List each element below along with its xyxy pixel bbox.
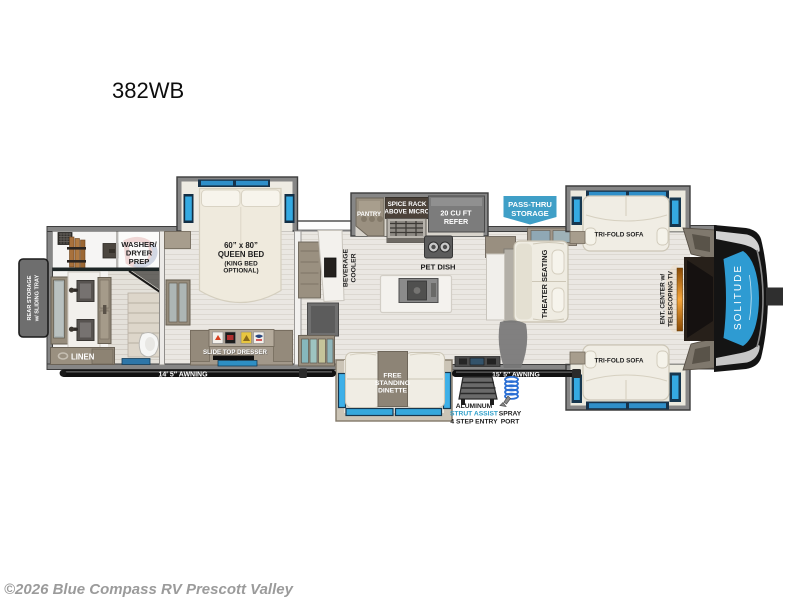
svg-text:SPICE RACK: SPICE RACK [388, 201, 427, 208]
svg-text:382WB: 382WB [112, 78, 184, 103]
svg-text:TRI-FOLD SOFA: TRI-FOLD SOFA [595, 232, 644, 239]
svg-text:STORAGE: STORAGE [511, 209, 548, 218]
svg-text:SPRAY: SPRAY [499, 411, 522, 418]
svg-text:PANTRY: PANTRY [357, 212, 381, 218]
svg-text:TELESCOPING TV: TELESCOPING TV [668, 270, 675, 326]
svg-text:TRI-FOLD SOFA: TRI-FOLD SOFA [595, 358, 644, 365]
svg-text:DINETTE: DINETTE [378, 388, 408, 395]
svg-text:SLIDE TOP DRESSER: SLIDE TOP DRESSER [203, 349, 268, 356]
svg-text:©2026 Blue Compass RV Prescott: ©2026 Blue Compass RV Prescott Valley [4, 581, 294, 598]
svg-text:(KING BED: (KING BED [224, 261, 258, 268]
svg-text:PORT: PORT [501, 418, 520, 425]
svg-text:REAR STORAGE: REAR STORAGE [27, 275, 33, 320]
svg-text:LINEN: LINEN [71, 353, 95, 362]
svg-text:ALUMINUM: ALUMINUM [456, 403, 493, 410]
svg-text:w/ SLIDING TRAY: w/ SLIDING TRAY [35, 275, 41, 323]
svg-text:SOLITUDE: SOLITUDE [733, 264, 744, 330]
svg-text:REFER: REFER [444, 217, 469, 226]
svg-text:FREE: FREE [383, 373, 402, 380]
svg-text:ABOVE MICRO: ABOVE MICRO [384, 209, 429, 216]
svg-text:ENT. CENTER w/: ENT. CENTER w/ [660, 274, 667, 325]
svg-text:PET DISH: PET DISH [420, 263, 455, 272]
svg-text:STRUT ASSIST: STRUT ASSIST [450, 411, 499, 418]
svg-text:60” x 80”: 60” x 80” [224, 241, 258, 250]
svg-text:BEVERAGE: BEVERAGE [343, 248, 350, 287]
svg-text:14′ 5″ AWNING: 14′ 5″ AWNING [158, 371, 208, 378]
svg-text:OPTIONAL): OPTIONAL) [223, 268, 258, 275]
svg-text:4 STEP ENTRY: 4 STEP ENTRY [450, 418, 498, 425]
svg-text:COOLER: COOLER [351, 253, 358, 282]
svg-text:THEATER SEATING: THEATER SEATING [540, 249, 549, 318]
svg-text:STANDING: STANDING [375, 380, 410, 387]
svg-text:QUEEN BED: QUEEN BED [218, 250, 265, 259]
svg-text:PREP: PREP [129, 257, 150, 266]
svg-text:PASS-THRU: PASS-THRU [508, 200, 552, 209]
